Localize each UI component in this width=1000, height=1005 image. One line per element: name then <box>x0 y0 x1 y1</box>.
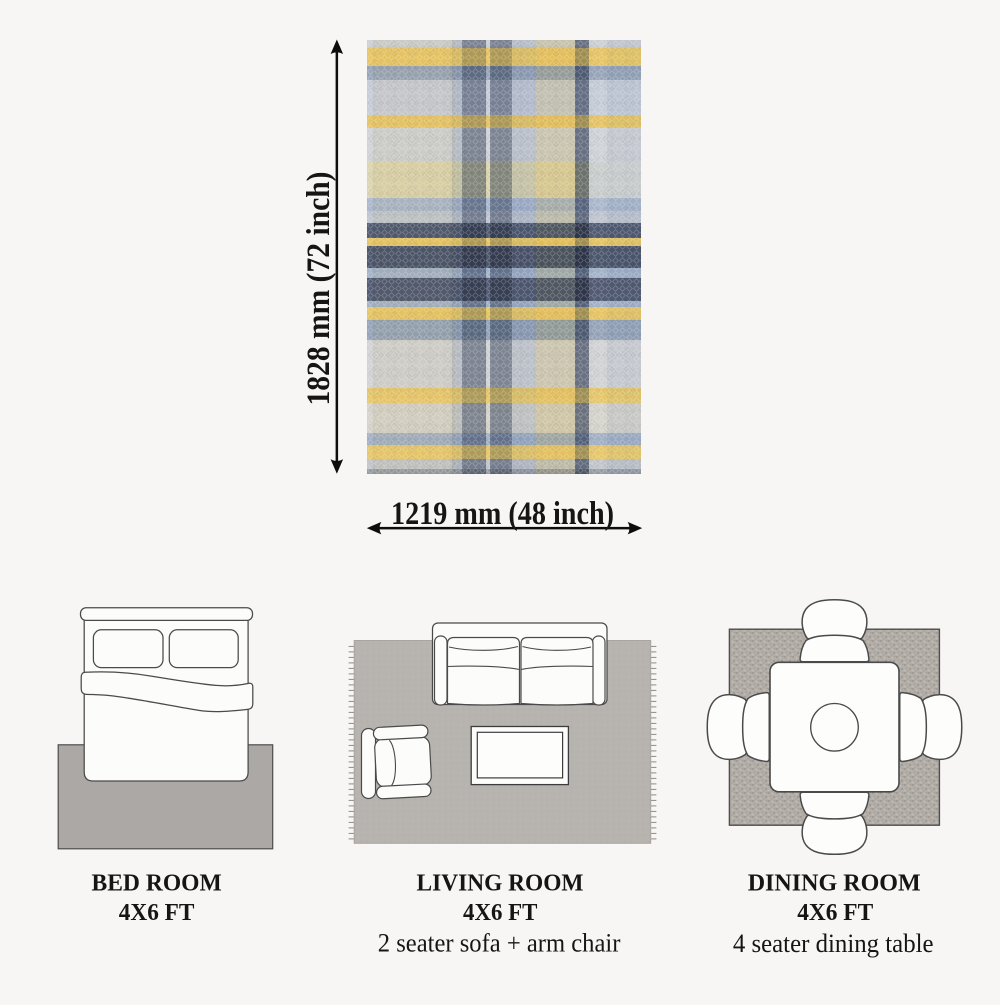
svg-text:BED ROOM: BED ROOM <box>92 870 222 896</box>
svg-text:2 seater sofa + arm chair: 2 seater sofa + arm chair <box>378 929 621 958</box>
svg-text:1828 mm (72 inch): 1828 mm (72 inch) <box>301 172 337 406</box>
svg-text:4X6 FT: 4X6 FT <box>463 900 537 926</box>
svg-text:4 seater dining table: 4 seater dining table <box>733 929 934 958</box>
svg-text:LIVING ROOM: LIVING ROOM <box>417 870 584 896</box>
svg-text:DINING ROOM: DINING ROOM <box>748 870 921 896</box>
svg-text:1219 mm (48 inch): 1219 mm (48 inch) <box>391 496 614 532</box>
svg-text:4X6 FT: 4X6 FT <box>119 900 195 926</box>
svg-text:4X6 FT: 4X6 FT <box>797 900 873 926</box>
